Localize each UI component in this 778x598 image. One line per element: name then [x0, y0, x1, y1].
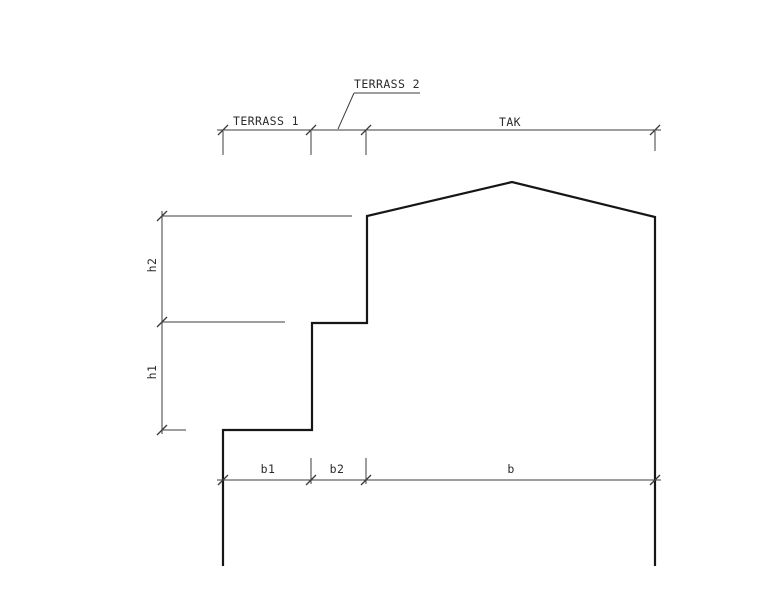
label-terrass2: TERRASS 2 — [354, 77, 420, 91]
width-dimension: b1 b2 b — [217, 458, 661, 485]
top-dimension: TERRASS 1 TAK — [217, 114, 661, 155]
label-terrass1: TERRASS 1 — [233, 114, 299, 128]
label-tak: TAK — [499, 115, 521, 129]
label-b2: b2 — [330, 462, 345, 476]
label-b1: b1 — [261, 462, 276, 476]
section-drawing: TERRASS 1 TAK TERRASS 2 h2 h1 — [0, 0, 778, 598]
label-h2: h2 — [145, 258, 159, 273]
building-outline — [223, 182, 655, 566]
label-b: b — [507, 462, 514, 476]
drawing-canvas: TERRASS 1 TAK TERRASS 2 h2 h1 — [0, 0, 778, 598]
terrass2-callout: TERRASS 2 — [338, 77, 420, 129]
label-h1: h1 — [145, 365, 159, 380]
callout-leader-line — [338, 93, 354, 129]
